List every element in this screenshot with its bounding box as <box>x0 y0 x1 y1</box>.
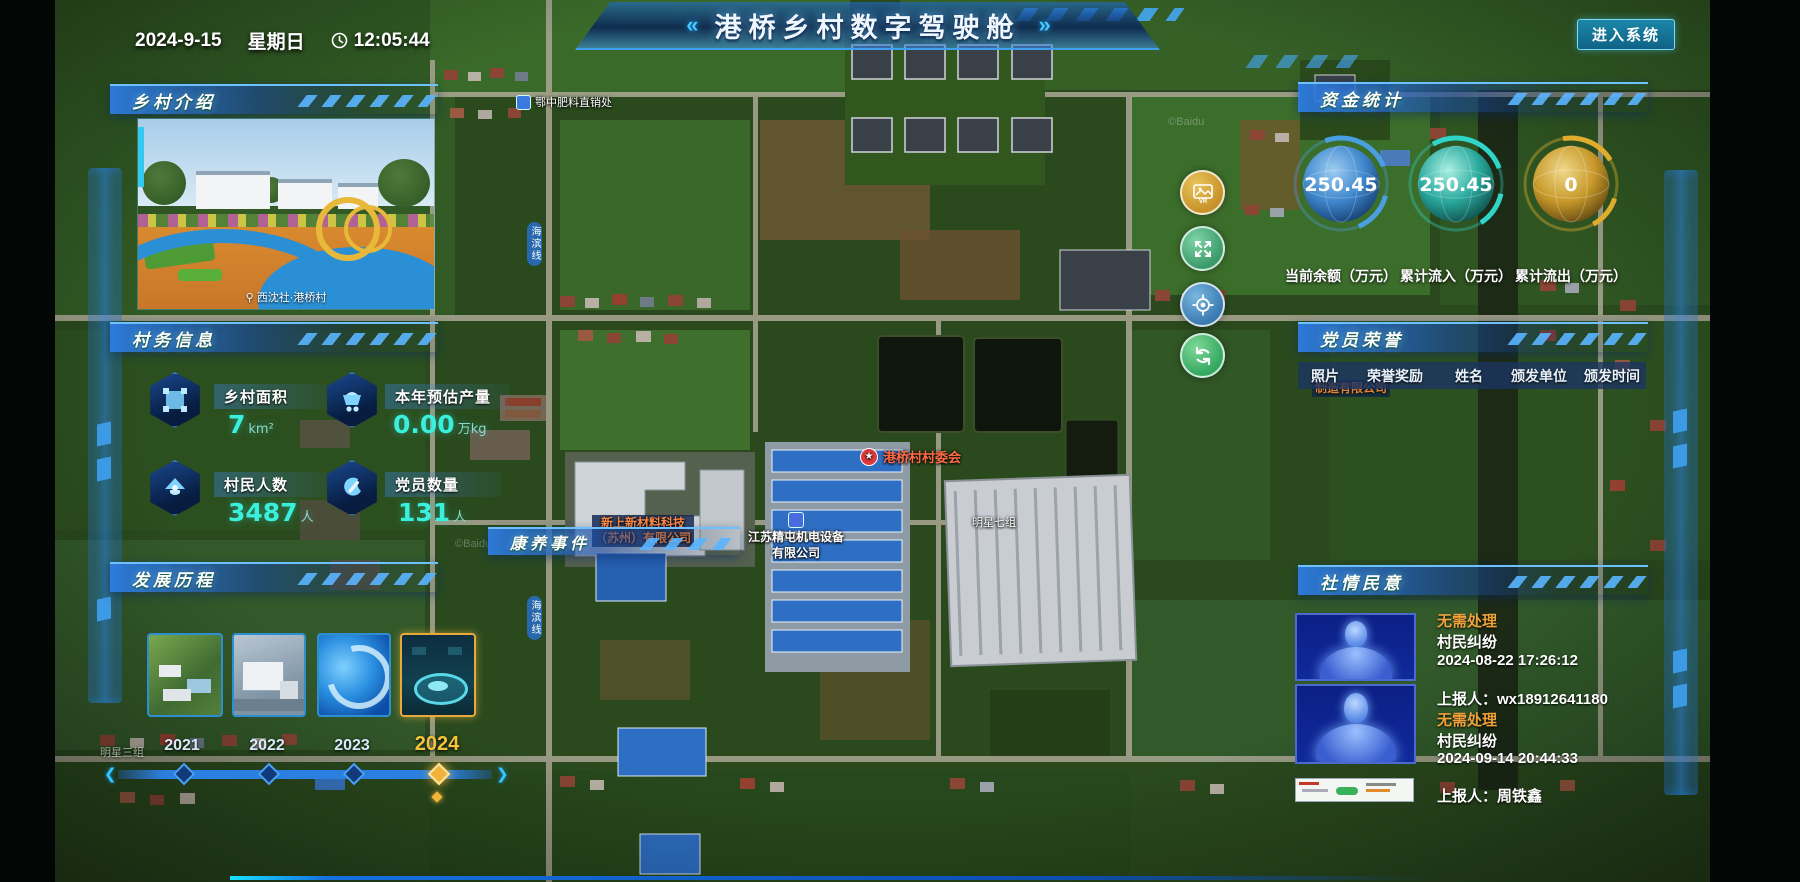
sentiment-status-1: 无需处理 <box>1437 610 1497 631</box>
gauge-outflow-value: 0 <box>1564 174 1577 196</box>
weekday-text: 星期日 <box>248 27 305 54</box>
panel-title-funds: 资金统计 <box>1298 82 1648 112</box>
svg-text:VR: VR <box>1198 199 1207 204</box>
gauge-inflow-value: 250.45 <box>1419 174 1492 196</box>
poi-group3: 明星三组 <box>100 744 144 760</box>
fullscreen-button[interactable] <box>1180 226 1225 271</box>
year-2024[interactable]: 2024 <box>397 733 477 756</box>
history-thumb-2022[interactable] <box>232 633 306 717</box>
reset-view-button[interactable] <box>1180 333 1225 378</box>
sentiment-time-1: 2024-08-22 17:26:12 <box>1437 652 1578 669</box>
page-title-banner: « 港桥乡村数字驾驶舱 » <box>575 2 1160 50</box>
sentiment-status-2: 无需处理 <box>1437 709 1497 730</box>
col-date: 颁发时间 <box>1578 366 1646 386</box>
datetime-display: 2024-9-15 星期日 12:05:44 <box>135 27 430 54</box>
sentiment-reporter-1: 上报人：wx18912641180 <box>1437 688 1608 709</box>
poi-icon <box>516 95 531 110</box>
date-text: 2024-9-15 <box>135 30 222 52</box>
sentiment-reporter-2: 上报人：周铁鑫 <box>1437 785 1542 806</box>
location-pin-icon: ⚲ <box>246 292 254 304</box>
title-deco-left: « <box>686 12 696 38</box>
expand-arrows-icon <box>1192 238 1214 260</box>
time-block: 12:05:44 <box>331 30 430 52</box>
timeline-next-arrow[interactable]: ❯ <box>496 765 509 783</box>
sentiment-type-2: 村民纠纷 <box>1437 730 1497 751</box>
gauge-inflow: 250.45 <box>1404 132 1508 236</box>
history-thumb-2024[interactable] <box>400 633 476 717</box>
poi-company-jingtun: 江苏精屯机电设备 有限公司 <box>748 512 844 561</box>
road-label-haibin-2: 海滨线 <box>527 596 542 640</box>
stat-label-villagers: 村民人数 <box>214 472 330 497</box>
stat-label-party: 党员数量 <box>385 472 501 497</box>
stat-label-area: 乡村面积 <box>214 384 330 409</box>
poi-group7: 明星七组 <box>972 514 1016 530</box>
stat-value-villagers: 3487人 <box>228 498 314 527</box>
star-pin-icon: ★ <box>860 448 878 466</box>
poi-icon <box>788 512 804 528</box>
col-photo: 照片 <box>1298 366 1352 386</box>
honors-table-header: 照片 荣誉奖励 姓名 颁发单位 颁发时间 <box>1298 362 1646 389</box>
col-name: 姓名 <box>1438 366 1500 386</box>
gauge-outflow: 0 <box>1519 132 1623 236</box>
history-thumb-2023[interactable] <box>317 633 391 717</box>
target-icon <box>1191 293 1215 317</box>
stat-value-output: 0.00万kg <box>393 410 486 439</box>
col-issuer: 颁发单位 <box>1500 366 1578 386</box>
baidu-watermark-2: ©Baidu <box>1168 116 1204 128</box>
sentiment-attachment-thumbnail[interactable] <box>1295 778 1414 802</box>
panel-title-affairs: 村务信息 <box>110 322 438 352</box>
panel-title-honors: 党员荣誉 <box>1298 322 1648 352</box>
right-frame-decoration <box>1664 170 1698 795</box>
year-2022[interactable]: 2022 <box>227 737 307 755</box>
gauge-balance: 250.45 <box>1289 132 1393 236</box>
poi-fertilizer-shop: 鄂中肥料直销处 <box>516 94 612 110</box>
stat-value-area: 7km² <box>228 410 274 439</box>
enter-system-button[interactable]: 进入系统 <box>1577 19 1675 50</box>
clock-icon <box>331 32 348 49</box>
title-deco-right: » <box>1039 12 1049 38</box>
swap-arrows-icon <box>1191 344 1215 368</box>
header-hatch-right2 <box>1245 55 1364 68</box>
history-thumb-2021[interactable] <box>147 633 223 717</box>
gauge-label-outflow: 累计流出（万元） <box>1496 266 1646 286</box>
stat-value-party: 131人 <box>398 498 466 527</box>
sentiment-type-1: 村民纠纷 <box>1437 631 1497 652</box>
baidu-watermark: ©Baidu <box>455 538 491 550</box>
gauge-balance-value: 250.45 <box>1304 174 1377 196</box>
time-text: 12:05:44 <box>354 30 430 52</box>
dashboard-screen: 鄂中肥料直销处 海滨线 海滨线 ★ 港桥村村委会 江苏精屯机电设备 有限公司 新… <box>0 0 1800 882</box>
photo-caption: ⚲ 西沈社·港桥村 <box>138 289 434 305</box>
sentiment-photo-1[interactable] <box>1295 613 1416 681</box>
sentiment-photo-2[interactable] <box>1295 684 1416 764</box>
page-title: 港桥乡村数字驾驶舱 <box>715 6 1021 45</box>
poi-village-committee[interactable]: ★ 港桥村村委会 <box>860 447 961 466</box>
stat-label-output: 本年预估产量 <box>385 384 509 409</box>
bottom-frame-line <box>230 876 1430 880</box>
village-photo: ⚲ 西沈社·港桥村 <box>137 118 435 310</box>
vr-image-icon: VR <box>1192 182 1214 204</box>
year-2021[interactable]: 2021 <box>142 737 222 755</box>
left-frame-decoration <box>88 168 122 703</box>
sentiment-time-2: 2024-09-14 20:44:33 <box>1437 750 1578 767</box>
col-award: 荣誉奖励 <box>1352 366 1438 386</box>
locate-button[interactable] <box>1180 282 1225 327</box>
year-2023[interactable]: 2023 <box>312 737 392 755</box>
timeline-prev-arrow[interactable]: ❮ <box>104 765 117 783</box>
panel-title-intro: 乡村介绍 <box>110 84 438 114</box>
panel-title-events: 康养事件 <box>488 527 740 555</box>
road-label-haibin: 海滨线 <box>527 222 542 266</box>
panel-title-history: 发展历程 <box>110 562 438 592</box>
panel-title-sentiment: 社情民意 <box>1298 565 1648 595</box>
vr-view-button[interactable]: VR <box>1180 170 1225 215</box>
